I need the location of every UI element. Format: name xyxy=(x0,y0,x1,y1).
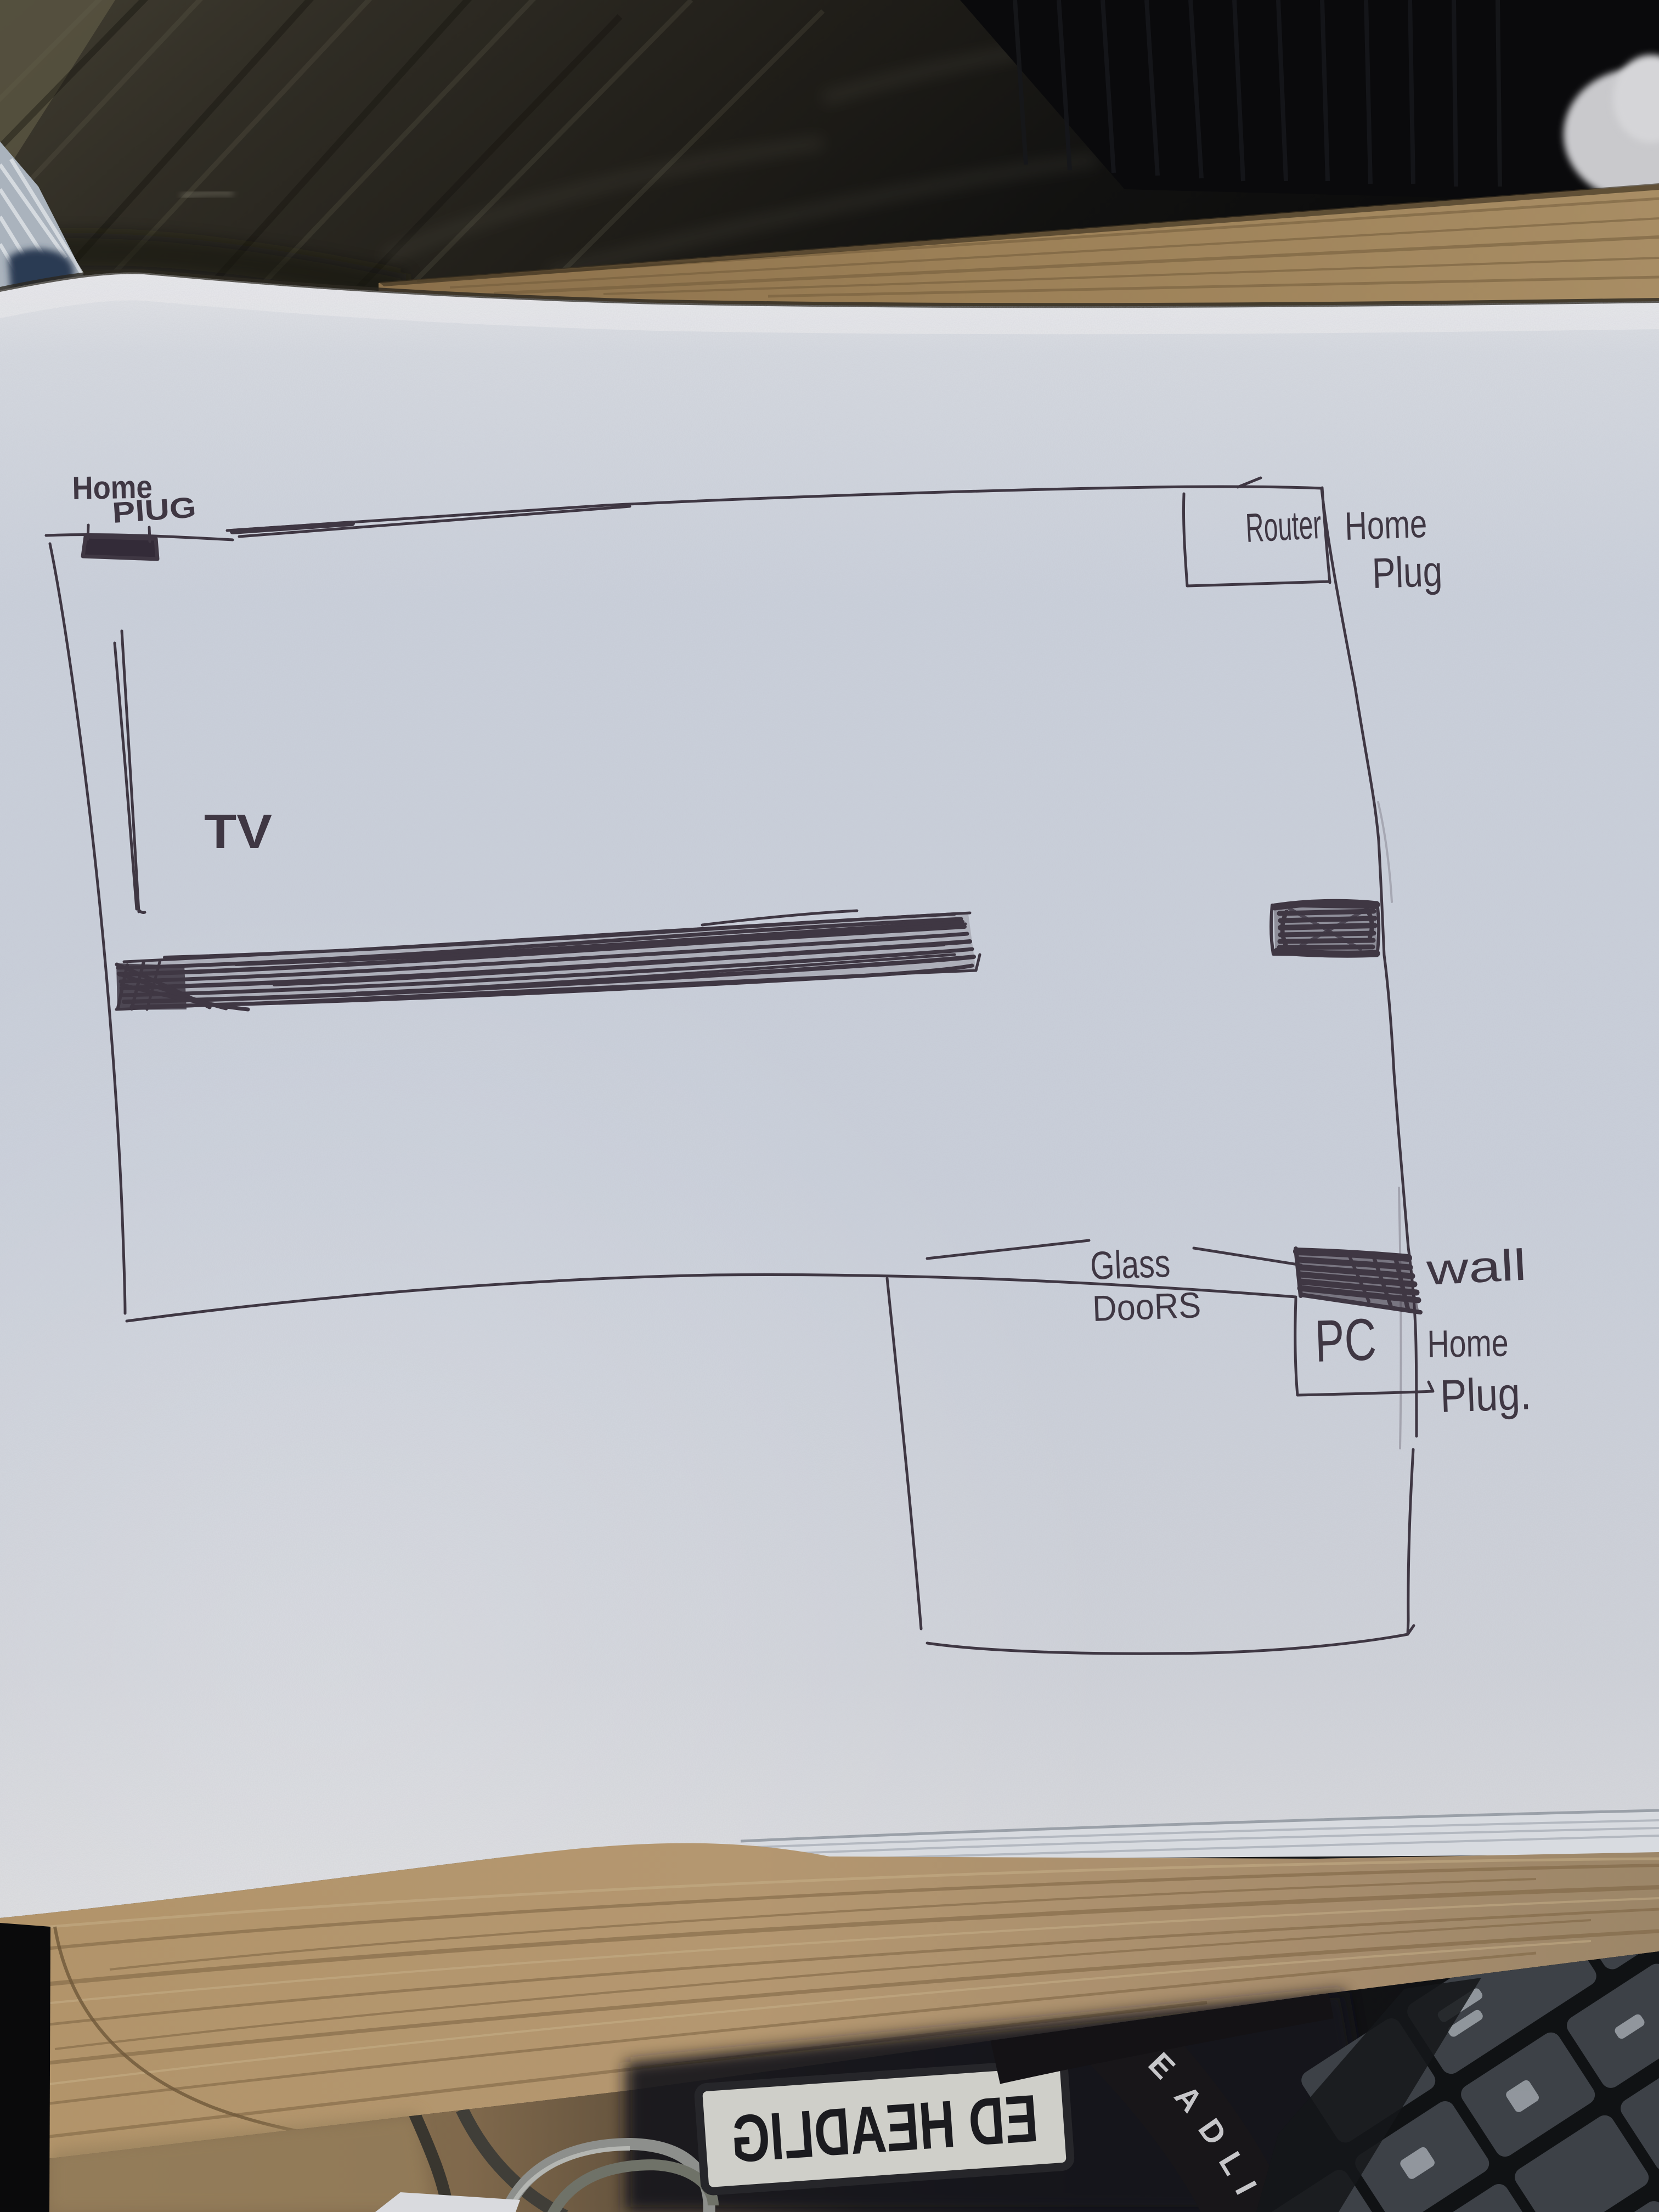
svg-text:TV: TV xyxy=(204,804,272,859)
svg-text:wall: wall xyxy=(1425,1240,1528,1294)
svg-text:Glass: Glass xyxy=(1090,1242,1171,1288)
svg-text:Router: Router xyxy=(1244,501,1322,551)
svg-text:Home: Home xyxy=(1427,1321,1509,1365)
svg-text:DooRS: DooRS xyxy=(1092,1284,1201,1329)
svg-text:PlUG: PlUG xyxy=(111,491,198,529)
svg-text:PC: PC xyxy=(1314,1306,1378,1374)
svg-text:Plug: Plug xyxy=(1372,547,1443,597)
svg-text:Home: Home xyxy=(1344,502,1428,549)
svg-text:Plug.: Plug. xyxy=(1439,1367,1532,1422)
